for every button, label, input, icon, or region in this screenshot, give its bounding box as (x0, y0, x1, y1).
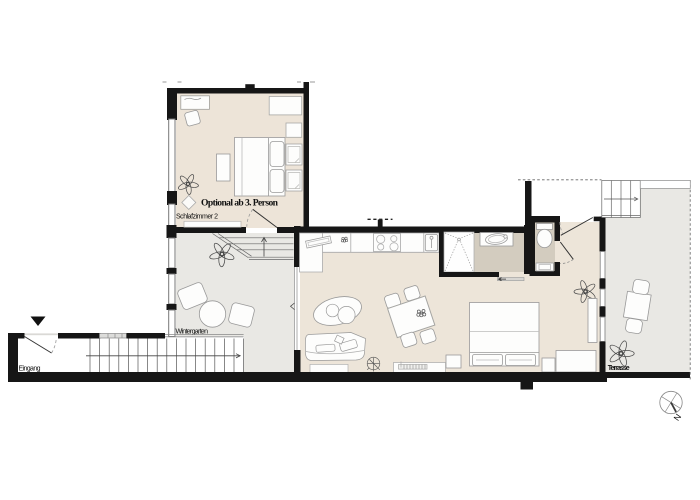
svg-text:Schlafzimmer 2: Schlafzimmer 2 (176, 214, 218, 221)
svg-text:Optional ab 3. Person: Optional ab 3. Person (201, 197, 279, 208)
svg-text:Terrasse: Terrasse (608, 365, 630, 372)
svg-text:Eingang: Eingang (19, 365, 41, 372)
